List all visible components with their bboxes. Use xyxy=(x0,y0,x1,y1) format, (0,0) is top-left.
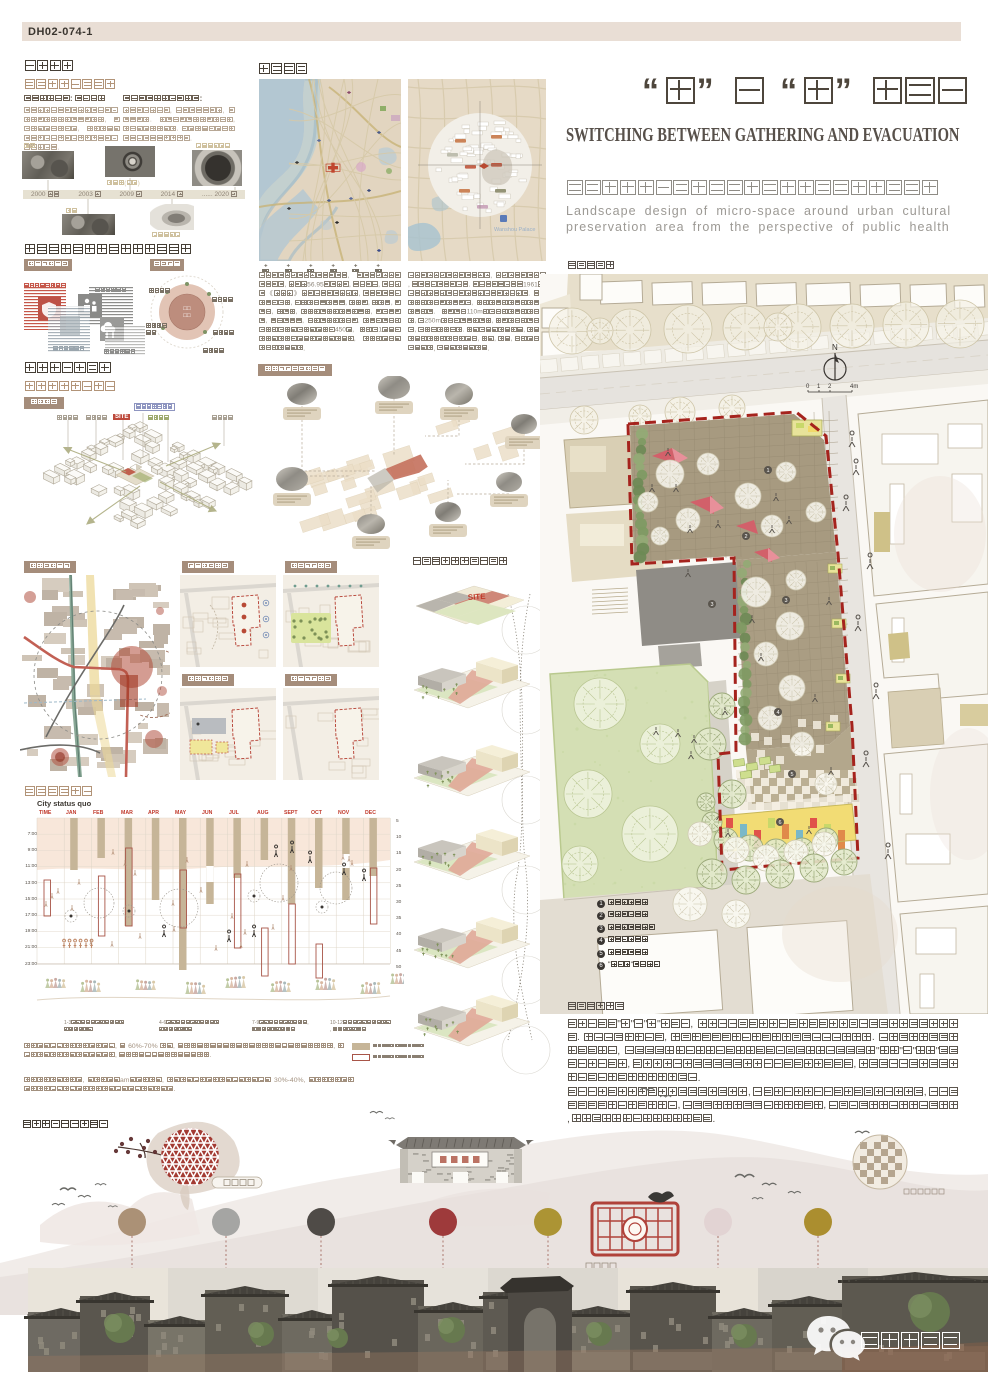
svg-text:11:00: 11:00 xyxy=(25,863,37,869)
svg-text:1: 1 xyxy=(766,468,769,474)
svg-text:20: 20 xyxy=(396,867,402,873)
svg-text:9:00: 9:00 xyxy=(28,847,38,853)
svg-text:□□: □□ xyxy=(183,306,191,312)
svg-text:Wanshou Palace: Wanshou Palace xyxy=(494,227,535,233)
svg-text:35: 35 xyxy=(396,915,402,921)
svg-text:N: N xyxy=(832,343,838,352)
svg-text:2: 2 xyxy=(744,534,747,540)
svg-text:SITE: SITE xyxy=(468,592,487,602)
svg-text:FEB: FEB xyxy=(93,810,104,816)
svg-text:MAY: MAY xyxy=(175,810,187,816)
svg-text:17:00: 17:00 xyxy=(25,912,37,918)
svg-text:23:00: 23:00 xyxy=(25,961,37,967)
svg-text:SEPT: SEPT xyxy=(284,810,298,816)
svg-text:4m: 4m xyxy=(850,384,858,390)
svg-text:TIME: TIME xyxy=(39,810,52,816)
svg-text:JUL: JUL xyxy=(229,810,240,816)
svg-text:3: 3 xyxy=(784,598,787,604)
svg-text:APR: APR xyxy=(148,810,159,816)
svg-text:DEC: DEC xyxy=(365,810,376,816)
svg-text:13:00: 13:00 xyxy=(25,880,37,886)
svg-text:7:00: 7:00 xyxy=(28,831,38,837)
svg-text:19:00: 19:00 xyxy=(25,928,37,934)
svg-text:6: 6 xyxy=(778,820,781,826)
svg-text:5: 5 xyxy=(790,772,793,778)
svg-text:JAN: JAN xyxy=(66,810,77,816)
svg-text:NOV: NOV xyxy=(338,810,350,816)
svg-text:AUG: AUG xyxy=(257,810,269,816)
svg-text:21:00: 21:00 xyxy=(25,944,37,950)
svg-text:5: 5 xyxy=(396,818,399,824)
svg-text:40: 40 xyxy=(396,931,402,937)
svg-text:50: 50 xyxy=(396,964,402,970)
svg-text:□□: □□ xyxy=(183,313,191,319)
svg-text:3: 3 xyxy=(710,602,713,608)
svg-text:45: 45 xyxy=(396,948,402,954)
svg-text:15:00: 15:00 xyxy=(25,896,37,902)
svg-text:JUN: JUN xyxy=(202,810,213,816)
svg-text:15: 15 xyxy=(396,850,402,856)
svg-text:MAR: MAR xyxy=(121,810,133,816)
svg-text:30: 30 xyxy=(396,899,402,905)
svg-text:4: 4 xyxy=(776,710,779,716)
svg-text:OCT: OCT xyxy=(311,810,323,816)
svg-text:10: 10 xyxy=(396,834,402,840)
svg-text:25: 25 xyxy=(396,883,402,889)
